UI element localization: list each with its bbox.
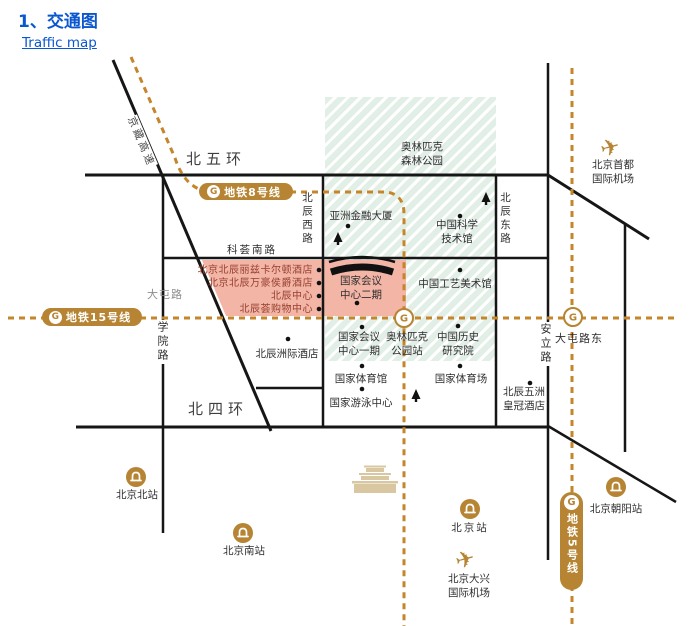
label-national-stadium: 国家体育场 [435, 372, 488, 386]
road-label-kehui-south: 科荟南路 [227, 243, 277, 257]
poi-dot [317, 307, 322, 312]
road-label-anli: 安立路 [539, 322, 551, 366]
label-beijing-north-station: 北京北站 [116, 488, 158, 502]
label-china-history-institute: 中国历史研究院 [437, 330, 479, 358]
road-label-xueyuan: 学院路 [156, 320, 168, 364]
road-label-datun: 大屯路 [147, 288, 183, 302]
label-beijing-south-station: 北京南站 [223, 544, 265, 558]
label-beichen-center: 北辰中心 [271, 291, 313, 302]
label-daxing-airport: 北京大兴国际机场 [448, 572, 490, 600]
metro-line15-badge: G 地铁15号线 [42, 308, 142, 326]
road-label-beichen-west: 北辰西路 [301, 192, 313, 246]
label-olympic-park-station: 奥林匹克公园站 [386, 330, 428, 358]
label-national-indoor-stadium: 国家体育馆 [335, 372, 388, 386]
label-intercontinental-hotel: 北辰洲际酒店 [256, 347, 319, 361]
label-capital-airport: 北京首都国际机场 [592, 158, 634, 186]
label-china-science-tech-museum: 中国科学技术馆 [436, 218, 478, 246]
road-label-north-5th-ring: 北五环 [186, 152, 246, 166]
poi-dot [456, 324, 461, 329]
poi-dot [360, 387, 365, 392]
tiananmen-icon [352, 466, 398, 494]
metro-line5-badge: G 地铁5号线 [560, 492, 583, 590]
traffic-map: 1、交通图 Traffic map [0, 0, 697, 626]
metro-logo-icon: G [207, 185, 220, 198]
poi-dot [346, 224, 351, 229]
metro-station-icon-datunludong: G [564, 308, 582, 326]
railway-station-icon-beijing-north [126, 467, 146, 487]
svg-text:G: G [569, 313, 577, 324]
plane-icon-daxing-airport: ✈ [453, 545, 478, 575]
road-label-beichen-east: 北辰东路 [499, 192, 511, 246]
metro-station-icon-olympic-park: G [395, 309, 413, 327]
label-national-aquatics-center: 国家游泳中心 [330, 396, 393, 410]
label-olympic-forest-park: 奥林匹克森林公园 [401, 140, 443, 168]
label-beijing-station: 北京站 [451, 521, 489, 535]
road-label-north-4th-ring: 北四环 [188, 402, 248, 416]
svg-text:G: G [400, 314, 408, 325]
label-crowne-plaza-hotel: 北辰五洲皇冠酒店 [503, 385, 545, 413]
poi-dot [360, 364, 365, 369]
railway-station-icon-beijing-chaoyang [606, 477, 626, 497]
railway-station-icon-beijing-south [233, 523, 253, 543]
label-asia-financial-tower: 亚洲金融大厦 [330, 209, 393, 223]
railway-station-icon-beijing [460, 499, 480, 519]
label-beichen-mall: 北辰荟购物中心 [240, 304, 314, 315]
label-ncc-phase2: 国家会议中心二期 [340, 274, 382, 302]
label-ncc-phase1: 国家会议中心一期 [338, 330, 380, 358]
label-ritz-carlton-hotel: 北京北辰丽兹卡尔顿酒店 [198, 265, 314, 276]
poi-dot [317, 268, 322, 273]
poi-dot [458, 364, 463, 369]
poi-dot [317, 294, 322, 299]
metro-line8-badge: G 地铁8号线 [199, 183, 293, 200]
label-china-arts-crafts-museum: 中国工艺美术馆 [418, 277, 492, 291]
poi-dot [458, 268, 463, 273]
label-beijing-chaoyang-station: 北京朝阳站 [590, 502, 643, 516]
label-marriott-marquis-hotel: 北京北辰万豪侯爵酒店 [208, 278, 313, 289]
poi-dot [360, 325, 365, 330]
tree-icon [412, 389, 421, 402]
poi-dot [317, 281, 322, 286]
road-label-datunludong: 大屯路东 [555, 332, 603, 346]
metro-logo-icon: G [564, 495, 579, 510]
tree-icon [334, 232, 343, 245]
poi-dot [286, 337, 291, 342]
tree-icon [482, 192, 491, 205]
ncc2-building-icon [331, 267, 393, 272]
metro-logo-icon: G [49, 311, 62, 324]
